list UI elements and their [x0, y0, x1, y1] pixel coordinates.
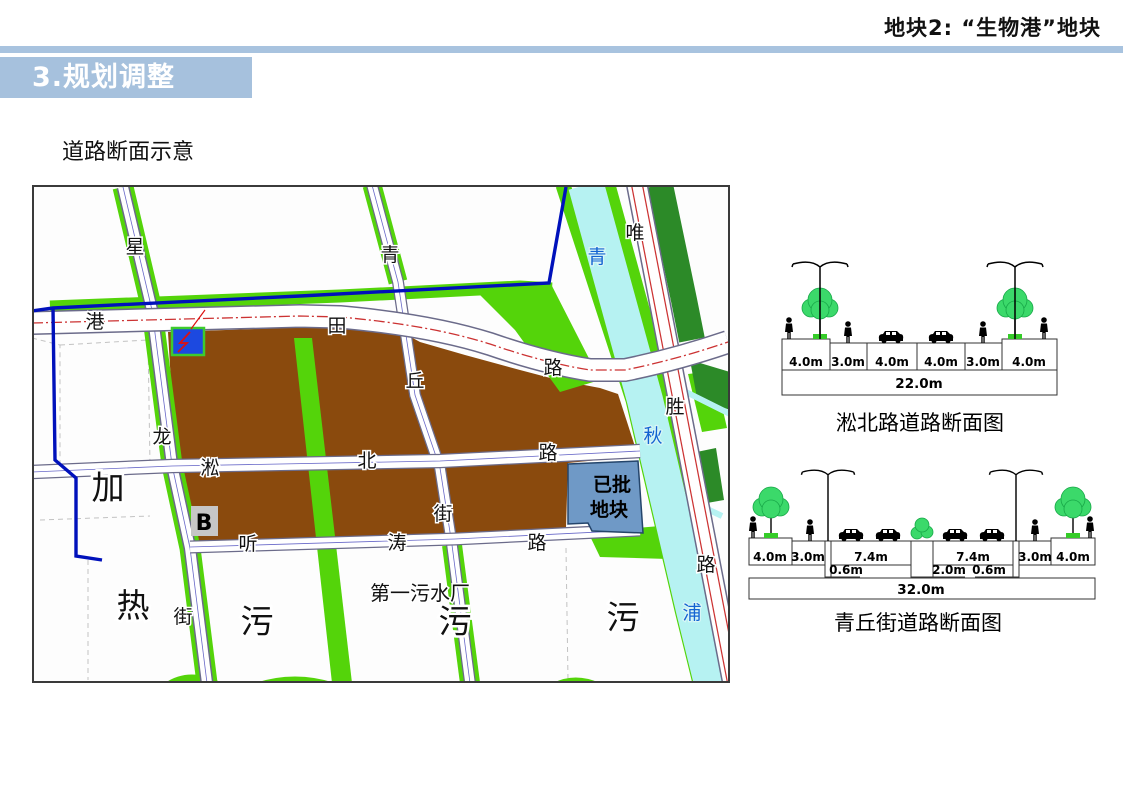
road-label: 唯	[625, 222, 644, 244]
pedestrian-icon	[806, 519, 814, 541]
car-icon	[879, 331, 903, 343]
road-label: 听	[238, 533, 257, 555]
cross-section-qingqiu: 4.0m 3.0m 7.4m 7.4m 3.0m 4.0m 0.6m 2.0m …	[749, 470, 1095, 635]
road-label: 路	[527, 532, 546, 554]
pedestrian-icon	[1040, 317, 1048, 339]
street-lamp-icon	[792, 262, 848, 339]
road-label: 街	[173, 606, 192, 628]
road-label: 淞	[200, 457, 219, 479]
dim-label: 4.0m	[789, 355, 823, 369]
street-lamp-icon	[987, 262, 1043, 339]
cross-section-songbei: 4.0m 3.0m 4.0m 4.0m 3.0m 4.0m 22.0m 淞北路道…	[782, 262, 1057, 435]
planning-map: B 星 港 田 路 青 丘 街 淞 北 路 听 涛 路 龙 街 唯 胜 路 青 …	[32, 185, 730, 683]
area-label: 污	[439, 602, 472, 641]
car-icon	[943, 529, 967, 541]
car-icon	[839, 529, 863, 541]
road-label: 龙	[152, 426, 171, 448]
road-label: 路	[543, 357, 562, 379]
dim-label: 4.0m	[1056, 550, 1090, 564]
total-dim-label: 22.0m	[895, 376, 942, 392]
road-label: 青	[380, 244, 399, 266]
pedestrian-icon	[1086, 516, 1094, 538]
area-label: 污	[241, 602, 274, 641]
plot-b-marker: B	[191, 506, 218, 536]
plot-b-label: B	[196, 511, 213, 536]
river-label: 青	[587, 246, 606, 268]
dim-label: 2.0m	[932, 563, 966, 577]
approved-plot-line2: 地块	[590, 498, 629, 521]
road-label: 胜	[665, 396, 684, 418]
dim-label: 4.0m	[1012, 355, 1046, 369]
area-label: 污	[607, 598, 640, 637]
area-label: 加	[92, 468, 125, 507]
approved-plot-shape	[568, 461, 643, 533]
road-label: 路	[538, 442, 557, 464]
dim-label: 0.6m	[829, 563, 863, 577]
dim-label: 0.6m	[972, 563, 1006, 577]
river-label: 浦	[682, 602, 701, 624]
dim-label: 4.0m	[924, 355, 958, 369]
pedestrian-icon	[749, 516, 757, 538]
section-caption: 淞北路道路断面图	[836, 411, 1004, 435]
header-divider-rule	[0, 46, 1123, 53]
road-label: 涛	[387, 532, 406, 554]
facility-label: 第一污水厂	[370, 581, 470, 605]
total-dim-label: 32.0m	[897, 582, 944, 598]
tree-icon	[1055, 487, 1091, 538]
dim-label: 4.0m	[753, 550, 787, 564]
car-icon	[876, 529, 900, 541]
road-label: 路	[696, 554, 715, 576]
road-label: 港	[85, 311, 104, 333]
dim-label: 7.4m	[854, 550, 888, 564]
car-icon	[980, 529, 1004, 541]
pedestrian-icon	[844, 321, 852, 343]
median-shrub-icon	[911, 518, 933, 539]
page-subtitle: 道路断面示意	[62, 134, 194, 166]
dim-label: 7.4m	[956, 550, 990, 564]
road-label: 田	[327, 315, 346, 337]
dim-label: 3.0m	[1018, 550, 1052, 564]
car-icon	[929, 331, 953, 343]
river-label: 秋	[643, 425, 662, 447]
section-banner: 3.规划调整	[0, 57, 252, 98]
road-label: 街	[433, 503, 452, 525]
pedestrian-icon	[1031, 519, 1039, 541]
tree-icon	[753, 487, 789, 538]
pedestrian-icon	[979, 321, 987, 343]
dim-label: 4.0m	[875, 355, 909, 369]
road-label: 北	[357, 450, 376, 472]
dim-label: 3.0m	[791, 550, 825, 564]
dim-label: 3.0m	[966, 355, 1000, 369]
page-title: 地块2: “生物港”地块	[884, 12, 1101, 42]
pedestrian-icon	[785, 317, 793, 339]
road-label: 丘	[405, 370, 424, 392]
dim-label: 3.0m	[831, 355, 865, 369]
cross-sections-panel: 4.0m 3.0m 4.0m 4.0m 3.0m 4.0m 22.0m 淞北路道…	[740, 255, 1100, 655]
road-label: 星	[125, 236, 144, 258]
approved-plot-line1: 已批	[593, 474, 631, 496]
section-caption: 青丘街道路断面图	[834, 611, 1002, 635]
area-label: 热	[117, 586, 150, 625]
